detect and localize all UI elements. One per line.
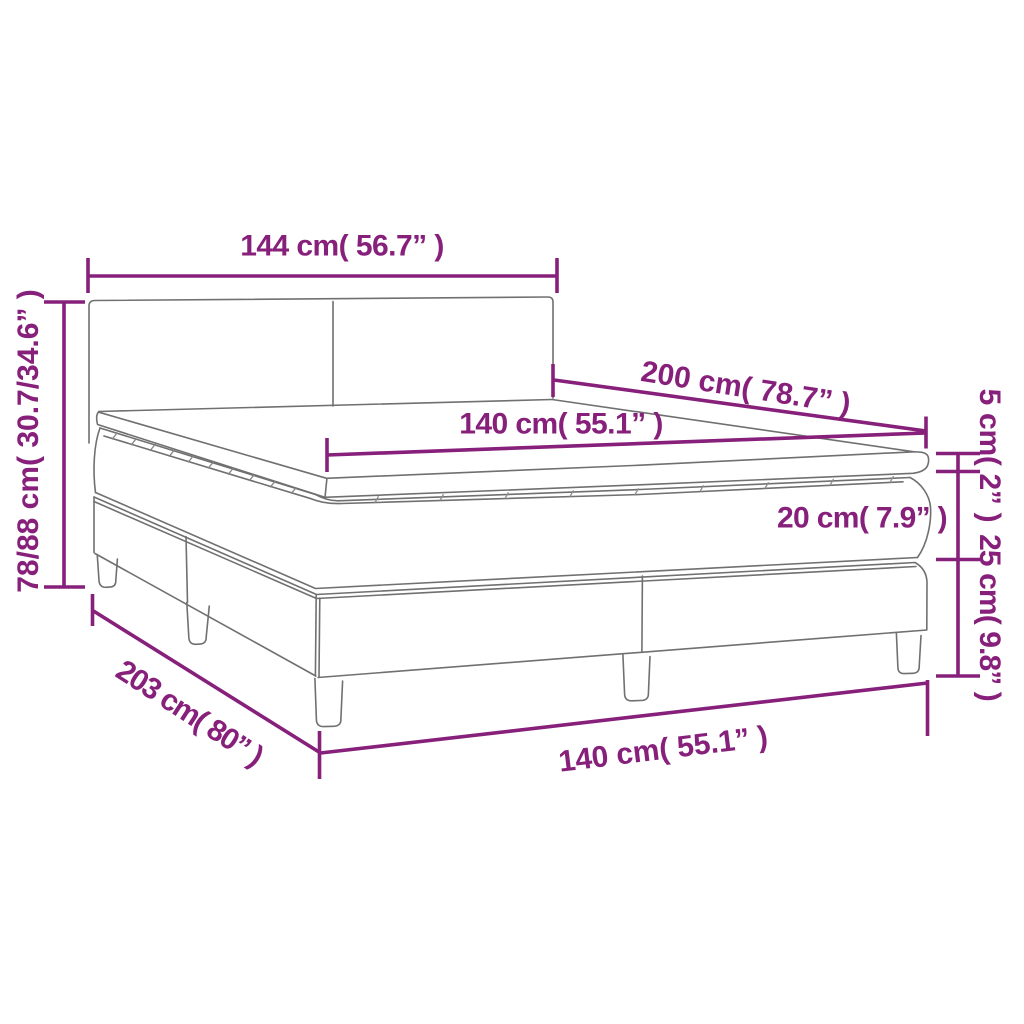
svg-text:200 cm( 78.7” ): 200 cm( 78.7” )	[639, 355, 853, 421]
svg-text:140 cm( 55.1” ): 140 cm( 55.1” )	[557, 720, 770, 778]
svg-text:140 cm( 55.1” ): 140 cm( 55.1” )	[459, 408, 663, 441]
svg-text:78/88 cm( 30.7/34.6” ): 78/88 cm( 30.7/34.6” )	[12, 289, 45, 593]
svg-text:25 cm( 9.8” ): 25 cm( 9.8” )	[973, 534, 1006, 701]
svg-text:20 cm( 7.9” ): 20 cm( 7.9” )	[777, 502, 947, 535]
svg-text:5 cm( 2” ): 5 cm( 2” )	[973, 389, 1006, 523]
svg-text:144 cm( 56.7” ): 144 cm( 56.7” )	[240, 230, 444, 263]
